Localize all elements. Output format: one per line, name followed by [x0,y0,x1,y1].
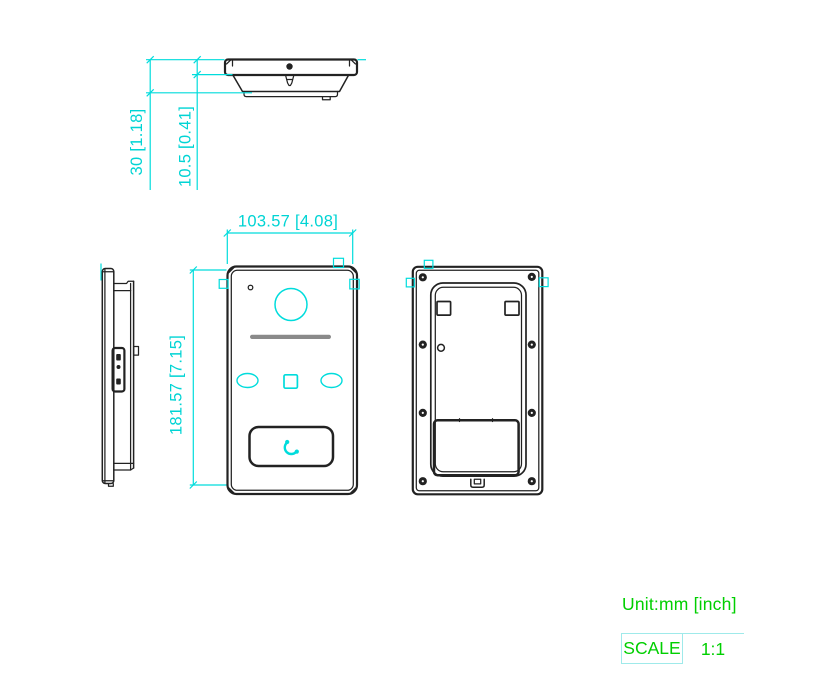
screw-center [531,480,533,482]
dim-height: 181.57 [7.15] [168,335,186,435]
hook-slot-right [505,302,519,316]
technical-drawing-canvas: 30 [1.18] 10.5 [0.41] 103.57 [4.08] 181.… [0,0,832,686]
top-view-corner-tick-left [227,60,231,64]
scale-value: 1:1 [683,634,743,664]
drawing-svg: 30 [1.18] 10.5 [0.41] 103.57 [4.08] 181.… [0,0,832,686]
recess-outline [431,283,526,476]
top-view-body [233,75,349,91]
phone-handset-icon [280,439,299,458]
compartment [434,420,519,475]
height-dimension: 181.57 [7.15] [168,267,227,489]
top-view-body-base [244,92,338,97]
camera-circle [275,289,307,321]
screw-center [422,344,424,346]
speaker-grille [250,335,331,339]
width-dimension: 103.57 [4.08] [224,213,356,265]
unit-label: Unit:mm [inch] [622,594,737,615]
port-dot-icon [117,365,121,369]
top-view-corner-tick-right [352,60,356,64]
mount-marker-right [539,278,548,287]
scale-label: SCALE [622,634,683,664]
screw-center [531,344,533,346]
depth-dimensions: 30 [1.18] 10.5 [0.41] [128,56,366,190]
port-icon [116,379,121,385]
top-view-screw [286,63,292,69]
screw-center [531,276,533,278]
cutout-square-center [284,375,297,388]
front-panel-outline [228,267,358,495]
mic-hole [248,285,253,290]
front-view [219,258,359,494]
cable-tab-inner [474,479,480,484]
screw-center [422,480,424,482]
back-panel-outline [413,267,543,495]
top-view [225,60,357,100]
screw-center [422,412,424,414]
screw-center [531,412,533,414]
dim-flange-depth: 10.5 [0.41] [177,106,195,187]
back-view [406,260,548,494]
side-view [101,264,139,487]
sd-slot-icon [116,354,121,361]
scale-table: SCALE 1:1 [621,633,744,664]
dim-total-depth: 30 [1.18] [128,109,146,176]
cutout-oval-left [237,374,258,388]
hook-slot-left [437,302,451,316]
call-button [250,427,334,466]
back-hole [438,344,445,351]
cutout-oval-right [321,374,342,388]
cable-tab [471,479,484,487]
screw-center [422,276,424,278]
dim-width: 103.57 [4.08] [238,213,338,231]
top-view-clip [286,75,294,86]
